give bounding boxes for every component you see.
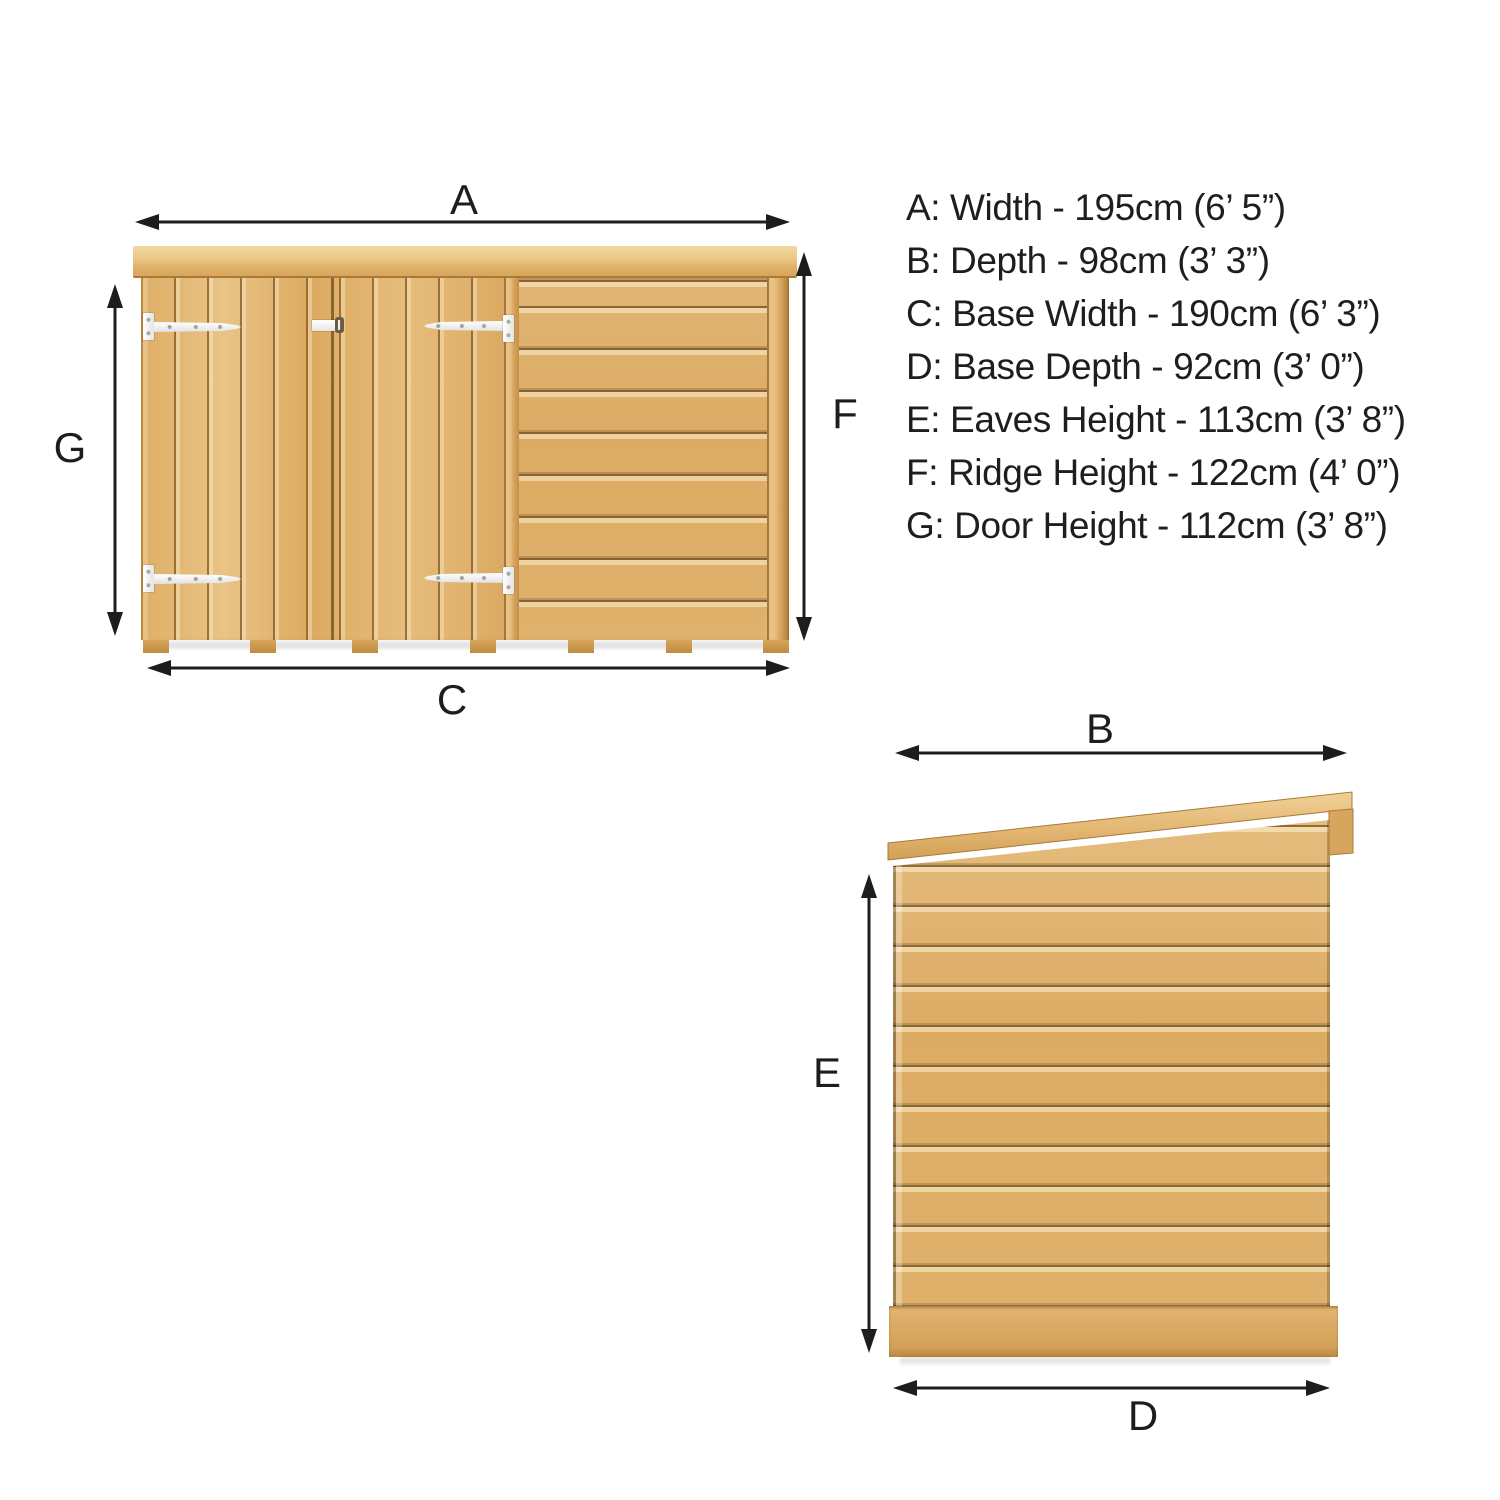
spec-line-door-height: G: Door Height - 112cm (3’ 8”) (906, 499, 1476, 552)
shed-foot (352, 640, 378, 653)
hinge-bottom-right (424, 567, 524, 594)
door-height-arrow-G (107, 284, 123, 636)
hasp-staple-icon (335, 317, 344, 333)
hinge-top-right (424, 315, 524, 342)
front-roof-trim (133, 246, 797, 278)
label-D: D (1128, 1395, 1158, 1437)
spec-line-width: A: Width - 195cm (6’ 5”) (906, 181, 1476, 234)
spec-line-eaves-height: E: Eaves Height - 113cm (3’ 8”) (906, 393, 1476, 446)
shed-foot (470, 640, 496, 653)
ridge-height-arrow-F (796, 252, 812, 641)
dimension-spec-list: A: Width - 195cm (6’ 5”) B: Depth - 98cm… (906, 181, 1476, 552)
shed-foot (568, 640, 594, 653)
side-elevation-wall (893, 820, 1330, 1357)
front-elevation (141, 278, 789, 640)
side-ground-shadow (900, 1357, 1330, 1364)
base-depth-arrow-D (893, 1380, 1330, 1396)
label-B: B (1086, 708, 1114, 750)
door-hasp-latch (312, 317, 346, 334)
shed-dimension-diagram: A C G F B E D A: Width - 195cm (6’ 5”) B… (0, 0, 1500, 1500)
hinge-plate-icon (503, 315, 514, 342)
front-corner-trim (767, 278, 789, 640)
side-roof-fascia (1329, 809, 1353, 855)
eaves-height-arrow-E (861, 874, 877, 1353)
spec-line-base-depth: D: Base Depth - 92cm (3’ 0”) (906, 340, 1476, 393)
front-lap-panel (519, 278, 789, 640)
label-E: E (813, 1052, 841, 1094)
hinge-top-left (143, 313, 243, 340)
label-G: G (54, 427, 87, 469)
depth-arrow-B (895, 745, 1347, 761)
shed-foot (250, 640, 276, 653)
hinge-plate-icon (143, 313, 154, 340)
label-A: A (450, 179, 478, 221)
hinge-strap-icon (424, 573, 503, 583)
spec-line-ridge-height: F: Ridge Height - 122cm (4’ 0”) (906, 446, 1476, 499)
shed-foot (666, 640, 692, 653)
hinge-strap-icon (424, 321, 503, 331)
shed-foot (763, 640, 789, 653)
hinge-strap-icon (154, 574, 241, 584)
hinge-strap-icon (154, 322, 241, 332)
label-F: F (832, 393, 858, 435)
hinge-plate-icon (503, 567, 514, 594)
label-C: C (437, 679, 467, 721)
spec-line-base-width: C: Base Width - 190cm (6’ 3”) (906, 287, 1476, 340)
shed-foot (143, 640, 169, 653)
hinge-plate-icon (143, 565, 154, 592)
hinge-bottom-left (143, 565, 243, 592)
base-width-arrow-C (147, 660, 790, 676)
spec-line-depth: B: Depth - 98cm (3’ 3”) (906, 234, 1476, 287)
side-base-board (889, 1306, 1338, 1357)
